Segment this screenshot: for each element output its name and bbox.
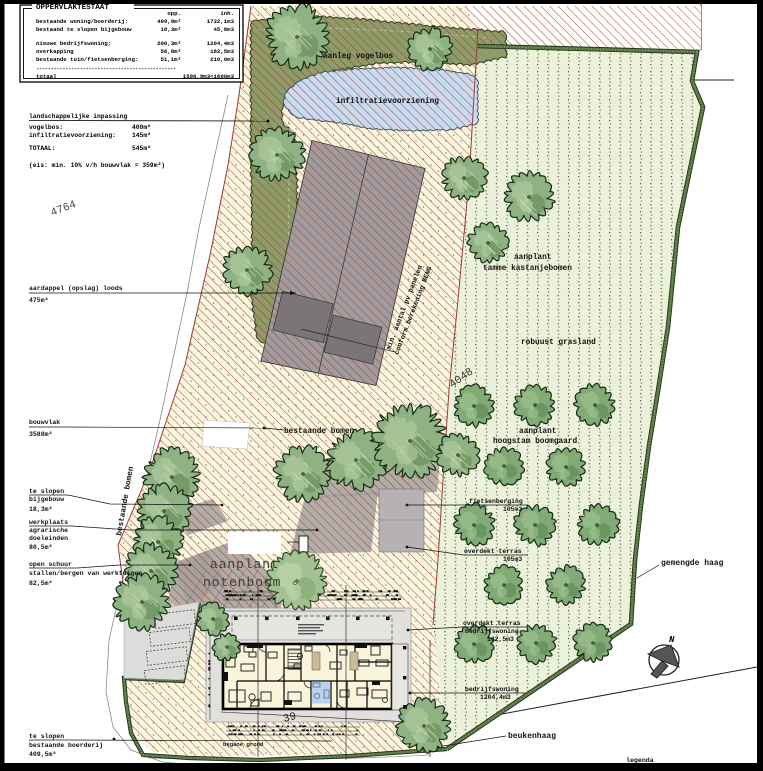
svg-text:aanleg vogelbos: aanleg vogelbos	[323, 53, 394, 61]
svg-text:51,1m²: 51,1m²	[161, 56, 181, 63]
svg-text:3588m²: 3588m²	[29, 431, 53, 438]
svg-text:begane grond: begane grond	[223, 741, 263, 748]
svg-text:N: N	[669, 635, 675, 645]
svg-text:overdekt terras: overdekt terras	[464, 548, 522, 555]
svg-text:vogelbos:: vogelbos:	[29, 124, 63, 131]
svg-text:(eis: min. 10% v/h bouwvlak =: (eis: min. 10% v/h bouwvlak = 359m²)	[29, 162, 165, 169]
svg-text:stallen/bergen van werktuigen: stallen/bergen van werktuigen	[29, 570, 142, 577]
svg-text:1204,4m3: 1204,4m3	[480, 694, 511, 701]
svg-text:145m²: 145m²	[132, 132, 151, 139]
svg-text:doeleinden: doeleinden	[29, 535, 68, 542]
svg-text:overkapping: overkapping	[36, 48, 74, 55]
svg-text:1596,9m3<1600m3: 1596,9m3<1600m3	[183, 73, 235, 80]
svg-text:aardappel (opslag) loods: aardappel (opslag) loods	[29, 285, 123, 292]
svg-text:bestaand te slopen bijgebouw: bestaand te slopen bijgebouw	[36, 26, 132, 33]
svg-text:bestaande bomen: bestaande bomen	[284, 428, 355, 436]
svg-text:te slopen: te slopen	[29, 733, 64, 740]
svg-text:545m²: 545m²	[132, 145, 151, 152]
svg-text:45,8m3: 45,8m3	[214, 26, 235, 33]
svg-text:182,5m3: 182,5m3	[210, 48, 234, 55]
svg-text:bestaande woning/boerderij:: bestaande woning/boerderij:	[36, 18, 128, 25]
svg-text:robuust grasland: robuust grasland	[521, 339, 596, 347]
svg-text:infiltratievoorziening: infiltratievoorziening	[336, 98, 439, 106]
svg-text:open schuur: open schuur	[29, 561, 72, 568]
svg-text:82,5m²: 82,5m²	[29, 580, 53, 587]
svg-text:1204,4m3: 1204,4m3	[207, 40, 235, 47]
svg-text:18,3m²: 18,3m²	[29, 506, 53, 513]
svg-text:landschappelijke inpassing: landschappelijke inpassing	[29, 113, 127, 120]
svg-text:tamme kastanjebomen: tamme kastanjebomen	[483, 265, 572, 273]
svg-text:TOTAAL:: TOTAAL:	[29, 145, 55, 152]
svg-text:80,5m²: 80,5m²	[29, 544, 53, 551]
svg-text:18,3m²: 18,3m²	[161, 26, 181, 33]
svg-text:------------------------------: ----------------------------------------…	[36, 65, 176, 72]
svg-text:te slopen: te slopen	[29, 488, 64, 495]
svg-text:bijgebouw: bijgebouw	[29, 496, 64, 503]
svg-text:OPPERVLAKTESTAAT: OPPERVLAKTESTAAT	[36, 4, 109, 12]
svg-text:182,5m3: 182,5m3	[487, 636, 514, 643]
svg-text:bestaande tuin/fietsenberging:: bestaande tuin/fietsenberging:	[36, 56, 138, 63]
svg-text:gemengde haag: gemengde haag	[661, 559, 724, 568]
svg-text:aanplant: aanplant	[514, 254, 551, 262]
svg-text:400m²: 400m²	[132, 124, 151, 131]
svg-text:475m²: 475m²	[29, 297, 49, 304]
svg-text:aanplant: aanplant	[210, 557, 280, 572]
svg-text:aanplant: aanplant	[519, 428, 556, 436]
svg-text:409,5m²: 409,5m²	[29, 751, 56, 758]
svg-text:beukenhaag: beukenhaag	[508, 732, 556, 741]
svg-text:totaal: totaal	[36, 73, 57, 80]
svg-text:409,9m²: 409,9m²	[157, 18, 181, 25]
svg-text:bouwvlak: bouwvlak	[29, 419, 60, 426]
svg-text:inh.: inh.	[220, 10, 234, 17]
svg-text:werkplaats: werkplaats	[29, 519, 68, 526]
svg-text:bedrijfswoning: bedrijfswoning	[465, 686, 519, 693]
svg-text:overdekt terras: overdekt terras	[463, 620, 521, 627]
svg-text:105m3: 105m3	[503, 556, 522, 563]
svg-text:notenboom: notenboom	[203, 575, 281, 590]
svg-text:210,0m3: 210,0m3	[210, 56, 234, 63]
svg-text:nieuwe bedrijfswoning;: nieuwe bedrijfswoning;	[36, 40, 111, 47]
svg-text:200,3m²: 200,3m²	[157, 40, 181, 47]
svg-text:infiltratievoorziening:: infiltratievoorziening:	[29, 132, 116, 139]
svg-text:bestaande boerderij: bestaande boerderij	[29, 742, 103, 749]
svg-text:56,8m²: 56,8m²	[161, 48, 181, 55]
svg-text:fietsenberging: fietsenberging	[469, 498, 523, 505]
svg-text:opp.: opp.	[167, 10, 181, 17]
svg-text:105m3: 105m3	[503, 506, 522, 513]
svg-text:agrarische: agrarische	[29, 527, 68, 534]
svg-text:hoogstam boomgaard: hoogstam boomgaard	[493, 438, 578, 446]
svg-text:1732,1m3: 1732,1m3	[207, 18, 235, 25]
svg-text:legenda: legenda	[626, 757, 654, 764]
svg-text:bedrijfswoning: bedrijfswoning	[465, 628, 519, 635]
